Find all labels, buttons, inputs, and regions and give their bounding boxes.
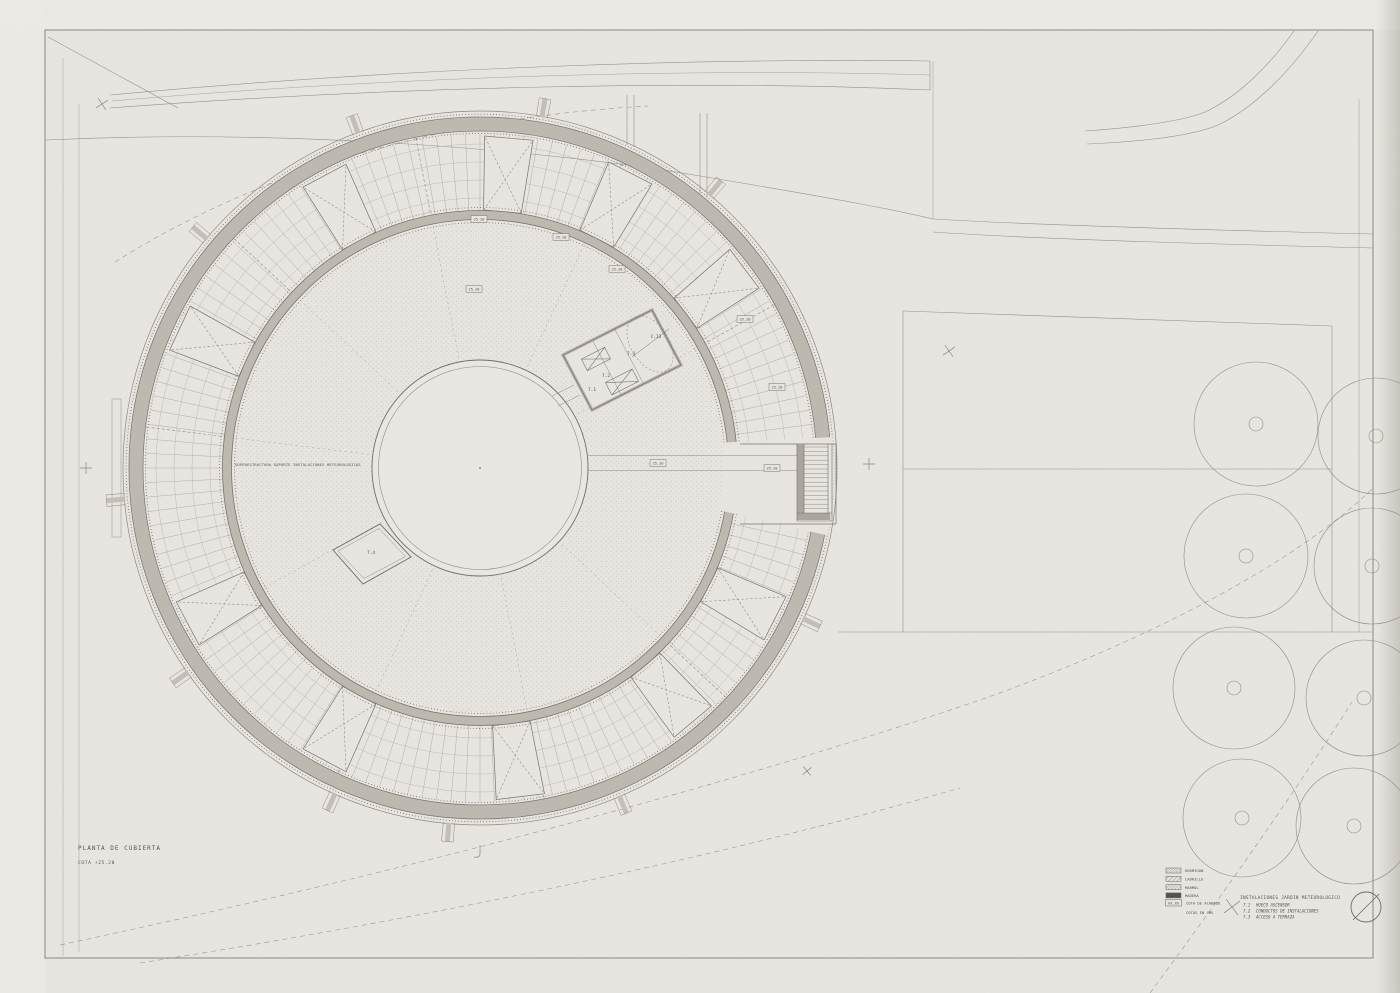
drawing-sheet: 25.2025.2025.2025.2025.2025.2025.2025.20… bbox=[0, 0, 1400, 993]
roof-plan-drawing: 25.2025.2025.2025.2025.2025.2025.2025.20… bbox=[0, 0, 1400, 993]
paper-grain bbox=[0, 0, 1400, 993]
